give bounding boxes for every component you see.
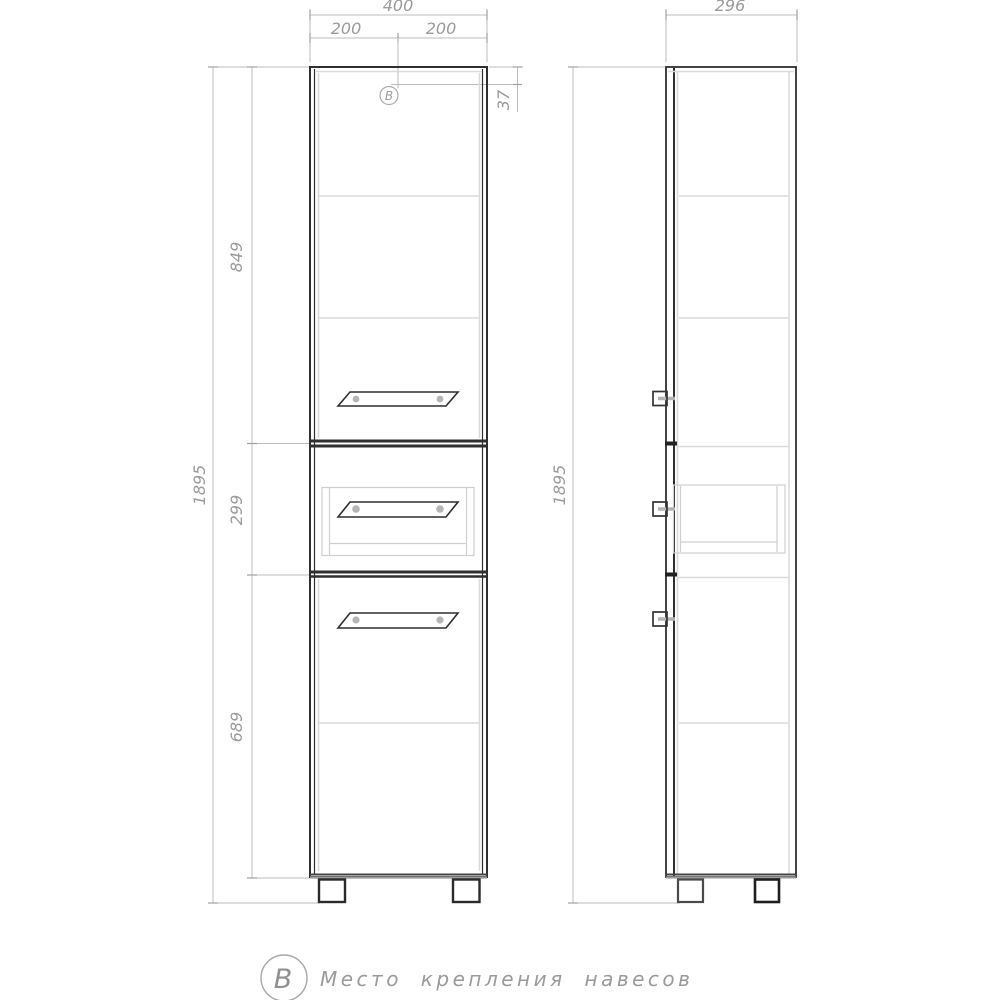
hanger-marker-symbol: В bbox=[385, 89, 393, 103]
front-drawer bbox=[322, 488, 474, 556]
side-view: 296 1895 bbox=[550, 0, 797, 903]
dim-half-widths: 200 200 bbox=[310, 19, 487, 88]
handle-upper-door bbox=[338, 392, 458, 406]
side-back-foot bbox=[755, 880, 779, 903]
side-front-foot bbox=[678, 880, 703, 903]
handle-screw bbox=[352, 505, 360, 513]
dim-total-width: 400 bbox=[310, 0, 487, 20]
dim-label-total-width: 400 bbox=[383, 0, 414, 15]
dim-label-total-height-side: 1895 bbox=[550, 465, 569, 506]
cabinet-drawing: 400 200 200 849 299 689 1895 bbox=[0, 0, 1000, 1000]
dim-total-height-front: 1895 bbox=[190, 67, 218, 903]
side-extension-lines bbox=[573, 9, 797, 903]
hanger-marker: В bbox=[380, 87, 398, 105]
technical-drawing-page: 400 200 200 849 299 689 1895 bbox=[0, 0, 1000, 1000]
dim-label-drawer-section: 299 bbox=[227, 495, 246, 526]
side-handle-bracket-upper bbox=[653, 392, 675, 406]
handle-screw bbox=[436, 616, 443, 623]
dim-label-upper-door: 849 bbox=[227, 242, 246, 273]
front-cabinet-body bbox=[310, 67, 487, 902]
dim-total-depth: 296 bbox=[666, 0, 797, 20]
front-left-foot bbox=[319, 880, 345, 903]
handle-drawer bbox=[338, 502, 458, 517]
handle-screw bbox=[437, 396, 444, 403]
side-cabinet-body bbox=[653, 67, 796, 902]
handle-screw bbox=[352, 616, 359, 623]
legend-symbol: В bbox=[274, 964, 293, 995]
legend-label: Место крепления навесов bbox=[320, 967, 693, 991]
side-handle-bracket-drawer bbox=[653, 502, 675, 516]
front-view: 400 200 200 849 299 689 1895 bbox=[190, 0, 523, 903]
handle-screw bbox=[353, 396, 360, 403]
handle-screw bbox=[436, 505, 444, 513]
dim-label-lower-door: 689 bbox=[227, 712, 246, 743]
dim-total-height-side: 1895 bbox=[550, 67, 578, 903]
dim-section-heights: 849 299 689 bbox=[227, 67, 257, 878]
side-drawer-box bbox=[674, 485, 786, 553]
legend: В Место крепления навесов bbox=[261, 955, 693, 1000]
handle-lower-door bbox=[338, 613, 458, 628]
dim-label-right-half: 200 bbox=[426, 19, 457, 38]
front-upper-door bbox=[319, 73, 480, 438]
side-handle-bracket-lower bbox=[653, 612, 675, 626]
dim-label-total-depth: 296 bbox=[715, 0, 746, 15]
dim-label-hanger-offset: 37 bbox=[494, 89, 513, 110]
dim-hanger-offset: 37 bbox=[391, 67, 522, 112]
front-right-foot bbox=[453, 880, 480, 903]
dim-label-left-half: 200 bbox=[331, 19, 362, 38]
front-extension-lines bbox=[213, 9, 523, 903]
dim-label-total-height-front: 1895 bbox=[190, 465, 209, 506]
